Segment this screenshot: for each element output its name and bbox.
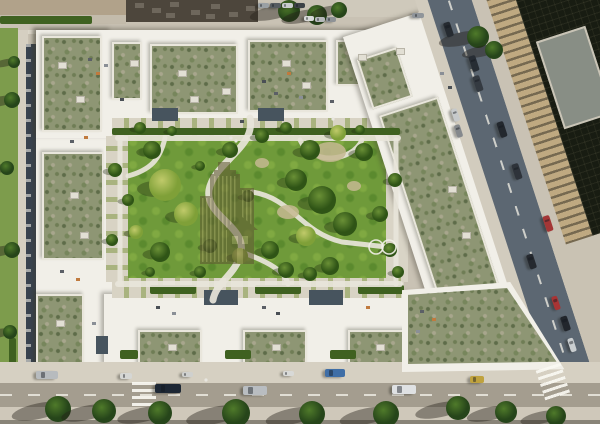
rooftop-clutter (191, 10, 200, 15)
bottom-edge-shade (0, 420, 600, 424)
car (294, 3, 305, 8)
rooftop-unit (70, 192, 79, 199)
hedge (225, 350, 251, 359)
rooftop-clutter (211, 4, 220, 9)
hedge (330, 350, 356, 359)
rooftop-unit (130, 60, 139, 67)
terrace-furniture (240, 120, 244, 123)
hedge (9, 338, 16, 364)
entrance-canopy (309, 290, 343, 305)
left-green-strip (0, 28, 18, 372)
top-building-beige (0, 0, 126, 15)
terrace-furniture (274, 92, 278, 95)
car (304, 16, 314, 21)
car-windshield (452, 111, 457, 115)
rooftop-clutter (206, 14, 215, 19)
car-windshield (445, 25, 451, 29)
entrance-canopy (96, 336, 108, 354)
hedge (0, 16, 92, 24)
car (282, 3, 293, 8)
green-roof (36, 294, 84, 370)
car (326, 17, 336, 22)
rooftop-clutter (229, 12, 238, 17)
car (392, 385, 416, 394)
car (36, 371, 58, 379)
hedge (358, 285, 404, 294)
terrace-furniture (60, 270, 64, 273)
bottom-lane-line (0, 394, 600, 396)
rooftop-unit (168, 344, 177, 351)
terrace-furniture (84, 136, 88, 139)
green-roof (42, 152, 104, 260)
car-windshield (562, 319, 568, 323)
car-windshield (41, 372, 45, 378)
car-windshield (498, 124, 504, 128)
terrace-furniture (104, 64, 108, 67)
car-windshield (455, 127, 460, 131)
car (325, 369, 345, 377)
left-balconies (26, 44, 31, 374)
car-windshield (285, 372, 287, 376)
rooftop-unit (56, 320, 65, 327)
car (315, 17, 325, 22)
terrace-furniture (156, 306, 160, 309)
car-windshield (415, 14, 417, 18)
hedge (255, 285, 301, 294)
courtyard-lawn (128, 136, 386, 278)
car-windshield (260, 4, 262, 8)
rooftop-unit (282, 60, 291, 67)
car-windshield (544, 218, 550, 222)
terrace-furniture (76, 278, 80, 281)
terrace-furniture (432, 318, 436, 321)
car (270, 3, 281, 8)
terrace-furniture (96, 72, 100, 75)
car-windshield (474, 78, 480, 82)
terrace-furniture (262, 80, 266, 83)
rooftop-clutter (135, 3, 144, 8)
rooftop-unit (222, 88, 231, 95)
car-windshield (184, 373, 186, 377)
rooftop-unit (178, 70, 187, 77)
rooftop-unit (396, 48, 405, 55)
car-windshield (272, 4, 274, 8)
terrace-furniture (88, 58, 92, 61)
terrace-furniture (92, 322, 96, 325)
terrace-furniture (276, 312, 280, 315)
car (155, 384, 181, 393)
rooftop-clutter (152, 8, 161, 13)
car-windshield (328, 18, 330, 22)
green-roof (150, 44, 238, 114)
car-windshield (397, 386, 401, 393)
car-windshield (329, 370, 333, 376)
car-windshield (248, 387, 252, 394)
terrace-furniture (448, 86, 452, 89)
car-windshield (553, 299, 558, 303)
entrance-canopy (258, 108, 284, 121)
car-windshield (470, 58, 476, 62)
green-roof (42, 36, 102, 132)
rooftop-unit (448, 186, 457, 193)
terrace-furniture (440, 72, 444, 75)
hedge (120, 350, 138, 359)
car (283, 371, 294, 376)
terrace-furniture (172, 312, 176, 315)
rooftop-clutter (166, 13, 175, 18)
car-windshield (317, 18, 319, 22)
green-roof (112, 42, 142, 100)
car-windshield (296, 4, 298, 8)
rooftop-unit (80, 232, 89, 239)
car (243, 386, 267, 395)
car-windshield (513, 166, 519, 170)
rooftop-unit (272, 344, 281, 351)
green-roof (248, 40, 328, 112)
terrace-furniture (420, 310, 424, 313)
rooftop-unit (58, 62, 67, 69)
rooftop-unit (190, 96, 199, 103)
terrace-furniture (70, 140, 74, 143)
terrace-furniture (287, 72, 291, 75)
hedge (112, 128, 400, 135)
car-windshield (306, 17, 308, 21)
terrace-furniture (416, 330, 420, 333)
terrace-furniture (366, 306, 370, 309)
aerial-render (0, 0, 600, 424)
car (470, 376, 484, 383)
car-windshield (284, 4, 286, 8)
terrace-furniture (330, 100, 334, 103)
rooftop-unit (76, 96, 85, 103)
car-windshield (123, 374, 125, 379)
entrance-canopy (204, 290, 238, 305)
terrace-furniture (262, 306, 266, 309)
car (182, 372, 193, 377)
terrace-furniture (120, 98, 124, 101)
entrance-canopy (152, 108, 178, 121)
rooftop-unit (462, 232, 471, 239)
rooftop-unit (302, 82, 311, 89)
car (120, 373, 132, 379)
hedge (150, 285, 196, 294)
rooftop-clutter (246, 6, 255, 11)
terrace-furniture (299, 96, 303, 99)
rooftop-clutter (170, 2, 179, 7)
rooftop-unit (376, 344, 385, 351)
car (412, 13, 424, 18)
rooftop-unit (358, 54, 367, 61)
car-windshield (528, 257, 534, 261)
car-windshield (569, 341, 574, 345)
car-windshield (161, 385, 166, 392)
car-windshield (473, 377, 476, 382)
car (258, 3, 269, 8)
